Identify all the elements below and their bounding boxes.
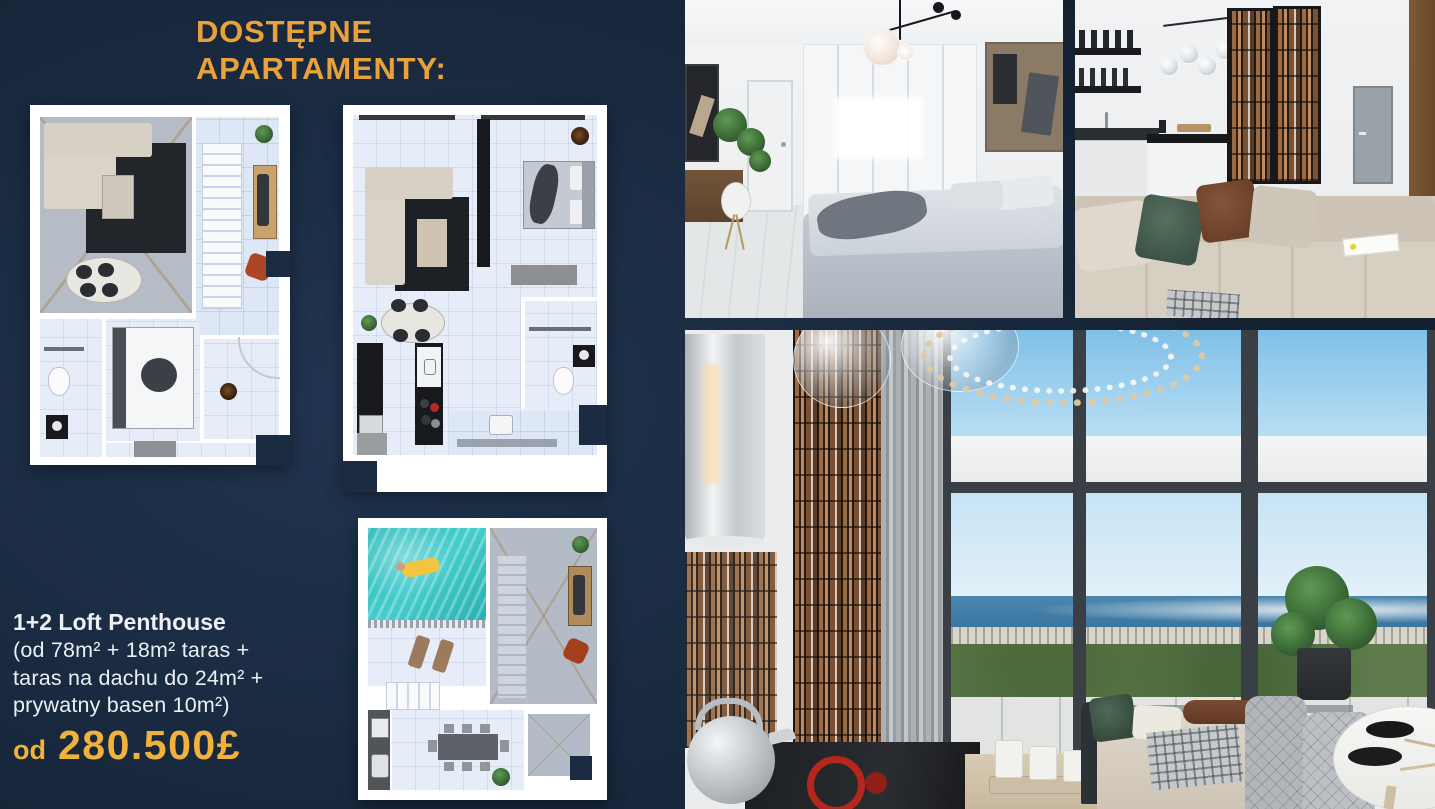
art-detail [1021,72,1059,136]
curtain [881,330,943,764]
sky [943,493,1435,596]
title-line-2: APARTAMENTY: [196,50,447,87]
glass-pendant [1179,44,1199,64]
burner [431,419,440,428]
washer [46,415,68,439]
hood-rim [685,536,765,546]
sofa [1097,712,1257,809]
living-room [40,117,192,313]
headboard [582,162,594,228]
desk-chairs [573,575,585,615]
glass-pendant [1197,56,1217,76]
pool-deck [368,628,486,686]
dining-table [381,303,445,343]
door-mat [134,441,176,457]
dining-chair [102,283,118,297]
kitchen-living-photo [1075,0,1435,318]
window-mullion [943,330,951,776]
presentation-slide: DOSTĘPNE APARTAMENTY: [0,0,1435,809]
dining-chair [415,329,430,342]
balcony [449,411,593,455]
glass-pendant [1159,56,1179,76]
desk [253,165,277,239]
wardrobe-divider [477,119,490,267]
floorplan-roof-terrace [358,518,607,800]
pillow [950,180,1004,212]
outdoor-dining-table [438,734,498,760]
door-handle [1359,132,1366,135]
roof-staircase [498,556,526,698]
bathroom [40,319,102,457]
bedroom-photo [685,0,1063,318]
price-prefix: od [13,735,46,766]
wood-wall [1409,0,1435,205]
rug [395,197,469,291]
bed-throw [141,358,177,392]
pendant-globe [863,28,901,66]
burner [420,399,429,408]
washer [573,345,595,367]
bottle [1159,120,1166,133]
shelf-items [1079,30,1133,48]
offer-price: od 280.500£ [13,722,343,769]
pendant-globe-small [897,44,914,61]
sink [417,347,441,387]
bed [803,212,1063,318]
hat [571,127,589,145]
deck-steps [386,682,440,710]
planter-box [357,433,387,455]
offer-block: 1+2 Loft Penthouse (od 78m² + 18m² taras… [13,608,343,769]
roof-dining-area [392,710,524,790]
bed [523,161,595,229]
chair [480,724,490,733]
plaid-throw [1146,723,1244,790]
plant [492,768,510,786]
offer-detail-3: prywatny basen 10m²) [13,692,343,720]
outdoor-chair [489,415,513,435]
wall-art-right [985,42,1063,152]
title-line-1: DOSTĘPNE [196,13,447,50]
apartment-floor [353,115,597,455]
window-reflection [834,97,924,159]
stove-counter [745,742,980,809]
plant [361,315,377,331]
plan-notch [266,251,290,277]
toilet [48,367,70,396]
door-handle [781,142,786,147]
washer-door [52,421,62,431]
pool [368,528,486,620]
art-detail [993,54,1017,104]
desk [568,566,592,626]
kettle [687,716,775,804]
chair [462,724,472,733]
plan-notch [579,405,607,445]
plant [255,125,273,143]
entry-hall [204,339,279,439]
dining-chair [80,283,96,297]
dining-chair [393,329,408,342]
bed-throw [526,162,562,226]
pendant-stem [899,0,901,40]
coffee-table [417,219,447,267]
chair [444,762,454,771]
hat [220,383,237,400]
terrace [196,117,279,335]
hood-reflection [703,364,719,484]
metal-screen-panel [1227,8,1273,184]
staircase [202,143,242,309]
black-plate [1366,721,1414,738]
balcony-plant [1325,598,1377,650]
sun-lounger [407,635,430,670]
burner-on [430,403,439,412]
headboard [113,328,126,428]
window [359,115,455,120]
pillow [570,166,582,190]
sun-lounger [431,639,454,674]
cutlery [1404,738,1435,750]
swimmer [396,562,405,571]
sofa-chaise [365,167,453,199]
plan-notch [570,756,592,780]
dining-chair [413,299,428,312]
price-value: 280.500£ [58,722,241,769]
shelf-items [1079,68,1133,86]
armchair [561,636,590,665]
outdoor-sink [371,718,389,738]
window [481,115,585,120]
pool-float [401,556,441,579]
bathroom [521,297,597,409]
black-plate [1348,747,1402,766]
desk-chairs [257,174,269,226]
kitchen-tall-unit [357,343,383,443]
burner-dot [865,772,887,794]
dining-chair [98,263,114,277]
sofa-chaise [44,123,152,157]
green-cushion [1134,193,1206,267]
offer-detail-2: taras na dachu do 24m² + [13,665,343,693]
jar [1029,746,1057,780]
jar [995,740,1023,778]
outdoor-kitchen [368,710,390,790]
window-transom [943,482,1435,493]
coffee-table [102,175,134,219]
bottom-hall [106,443,279,457]
door [1353,86,1393,184]
beige-cushion [1248,185,1318,249]
burner-ring [807,756,865,809]
bench [457,439,557,447]
shelf [1075,48,1141,55]
dining-chair [391,299,406,312]
chair [480,762,490,771]
sink-basin [424,359,436,375]
plaid-blanket [1166,290,1240,318]
spandrel [943,436,1435,484]
sofa [1075,196,1435,318]
dresser [511,265,577,285]
shelf [1075,86,1141,93]
wall-art-left [685,64,719,162]
outdoor-fridge [371,754,389,778]
loft-livingroom-photo [685,330,1435,809]
bedroom [106,319,200,441]
page-title: DOSTĘPNE APARTAMENTY: [196,13,447,87]
quilted-chair [1245,696,1307,809]
offer-name: 1+2 Loft Penthouse [13,608,343,637]
kitchen-island [415,343,443,445]
chair [444,724,454,733]
washer-door [579,350,589,360]
plan-notch [256,435,290,465]
door-swing [238,337,280,379]
dining-chair [76,265,92,279]
plan-notch [343,461,377,492]
sink-counter [44,347,84,351]
offer-detail-1: (od 78m² + 18m² taras + [13,637,343,665]
upper-terrace [490,528,597,704]
pendant-dot [933,2,944,13]
pendant-dot [951,10,961,20]
plant [572,536,589,553]
burner [421,415,431,425]
magazine-detail [1350,244,1357,251]
extractor-hood [685,334,765,542]
chair [462,762,472,771]
faucet [1105,112,1108,128]
plant [749,150,771,172]
sink-counter [529,327,591,331]
greenery [943,644,1435,697]
floorplan-main-level [30,105,290,465]
toilet [553,367,574,395]
bed [112,327,194,429]
cutting-board [1177,124,1211,132]
pool-edge [368,620,486,628]
green-cushion [1088,693,1138,743]
chair [428,740,437,752]
art-detail [689,95,715,137]
chair [500,740,509,752]
plant-pot [1297,648,1351,700]
pillow [570,200,582,224]
cutlery [1400,762,1435,771]
floorplan-apartment [343,105,607,492]
metal-screen-panel [1273,6,1321,184]
